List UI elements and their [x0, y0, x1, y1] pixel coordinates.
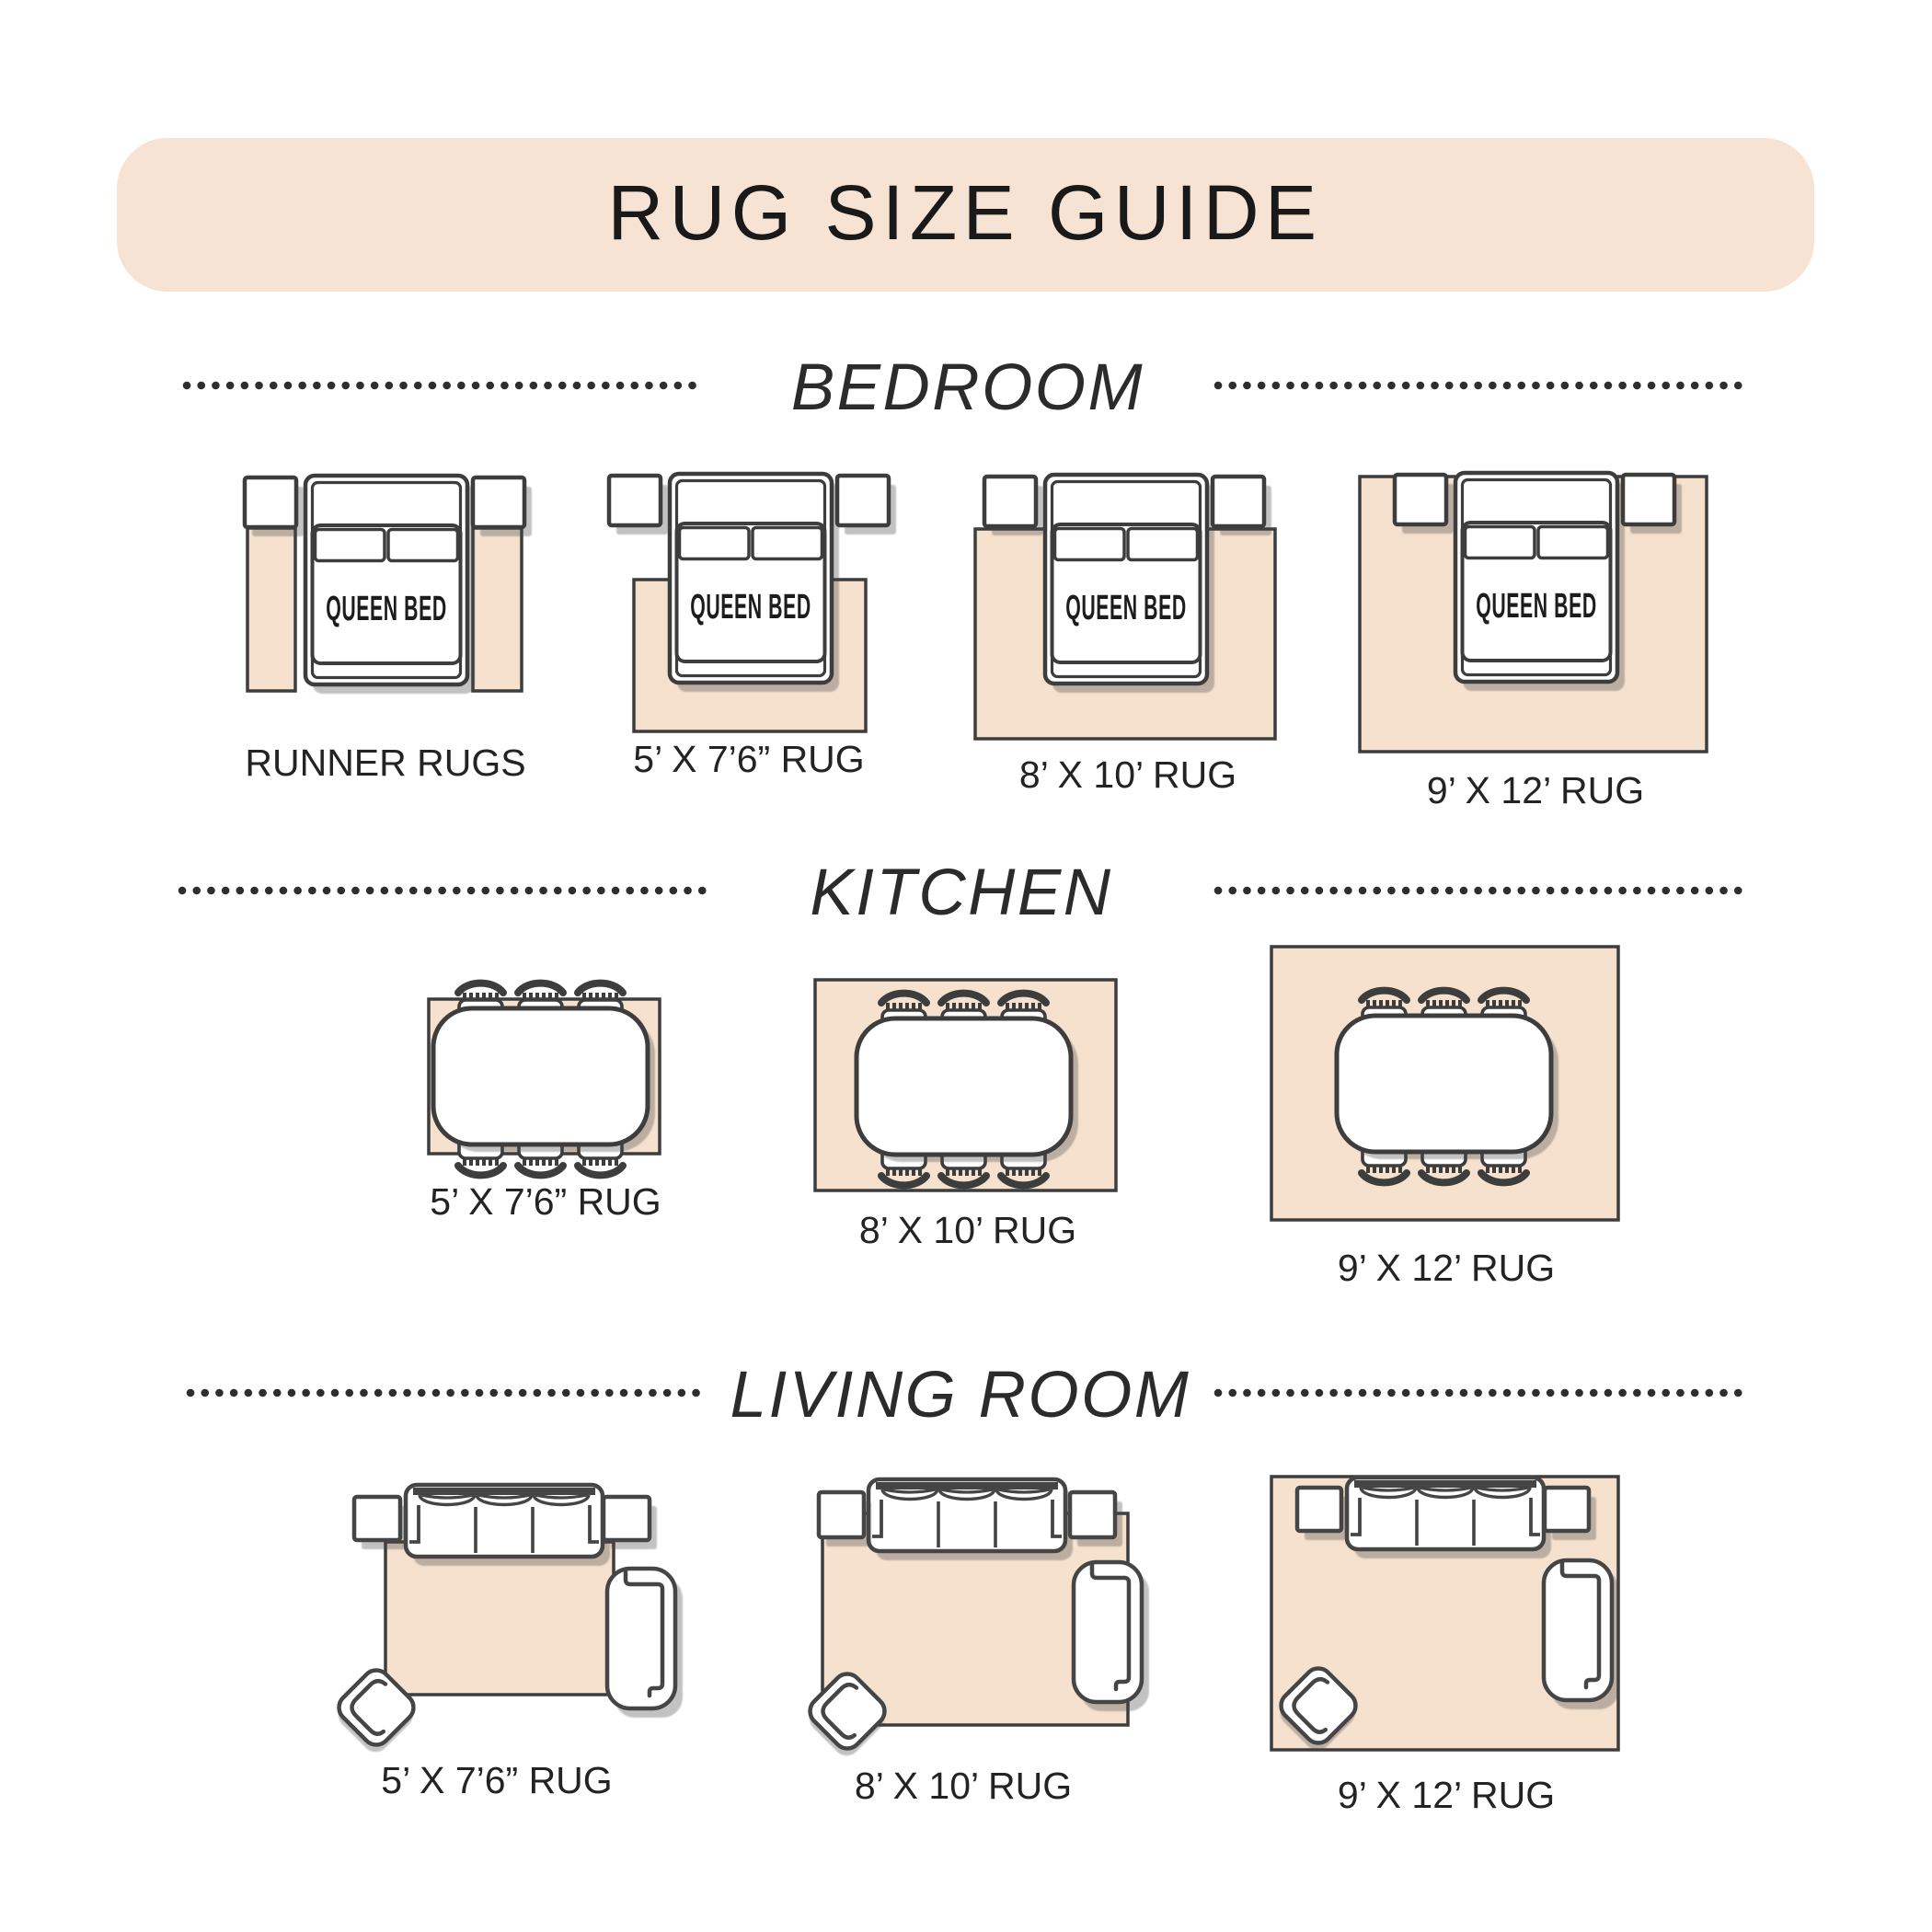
- svg-text:BEDROOM: BEDROOM: [791, 351, 1144, 424]
- svg-text:5’ X 7’6” RUG: 5’ X 7’6” RUG: [633, 738, 864, 780]
- svg-text:8’ X 10’ RUG: 8’ X 10’ RUG: [855, 1765, 1072, 1807]
- svg-text:RUNNER RUGS: RUNNER RUGS: [245, 742, 525, 784]
- svg-text:8’ X 10’ RUG: 8’ X 10’ RUG: [1019, 753, 1236, 796]
- svg-text:QUEEN BED: QUEEN BED: [1065, 587, 1187, 627]
- svg-text:LIVING ROOM: LIVING ROOM: [730, 1359, 1191, 1432]
- svg-text:5’ X 7’6” RUG: 5’ X 7’6” RUG: [381, 1759, 612, 1801]
- svg-text:KITCHEN: KITCHEN: [810, 857, 1112, 929]
- svg-text:QUEEN BED: QUEEN BED: [1476, 585, 1597, 625]
- svg-text:9’ X 12’ RUG: 9’ X 12’ RUG: [1427, 769, 1644, 811]
- svg-text:QUEEN BED: QUEEN BED: [326, 588, 447, 627]
- svg-text:5’ X 7’6” RUG: 5’ X 7’6” RUG: [430, 1180, 661, 1223]
- svg-text:9’ X 12’ RUG: 9’ X 12’ RUG: [1338, 1774, 1555, 1816]
- svg-text:QUEEN BED: QUEEN BED: [690, 586, 811, 626]
- svg-text:8’ X 10’ RUG: 8’ X 10’ RUG: [859, 1209, 1076, 1251]
- svg-text:9’ X 12’ RUG: 9’ X 12’ RUG: [1338, 1247, 1555, 1289]
- svg-text:RUG SIZE GUIDE: RUG SIZE GUIDE: [607, 169, 1322, 256]
